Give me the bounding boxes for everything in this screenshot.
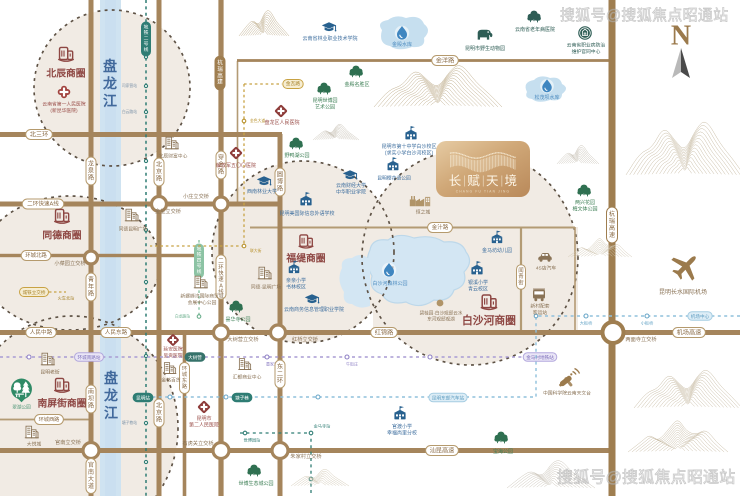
svg-text:地: 地 <box>144 23 149 30</box>
svg-text:小庄立交桥: 小庄立交桥 <box>183 192 210 200</box>
svg-text:北: 北 <box>156 402 163 410</box>
svg-text:龙: 龙 <box>103 388 118 404</box>
svg-text:金格百货: 金格百货 <box>161 377 180 384</box>
svg-text:铁: 铁 <box>197 251 202 258</box>
svg-text:速: 速 <box>609 231 615 239</box>
svg-text:瑞: 瑞 <box>609 217 615 225</box>
svg-text:幸福尚里分校: 幸福尚里分校 <box>387 430 417 437</box>
svg-text:CHANG FU TIAN JING: CHANG FU TIAN JING <box>456 190 510 194</box>
svg-text:昆明市第十中学白沙校区: 昆明市第十中学白沙校区 <box>381 143 436 150</box>
svg-text:昆明长水国际机场: 昆明长水国际机场 <box>659 288 707 296</box>
svg-text:A: A <box>219 283 223 289</box>
svg-text:新村配套: 新村配套 <box>530 303 549 310</box>
svg-text:昆明美国际信息外语学校: 昆明美国际信息外语学校 <box>279 210 334 217</box>
svg-text:福缇商圈: 福缇商圈 <box>285 252 325 265</box>
svg-text:二: 二 <box>277 371 283 378</box>
svg-text:金瓦路: 金瓦路 <box>286 80 301 87</box>
svg-text:中国科学院云南天文台: 中国科学院云南天文台 <box>543 390 591 397</box>
svg-text:青: 青 <box>518 272 524 280</box>
svg-text:建: 建 <box>217 78 223 86</box>
svg-text:机场中心: 机场中心 <box>691 313 710 320</box>
svg-text:杭: 杭 <box>609 210 615 218</box>
svg-text:亲亲小学: 亲亲小学 <box>286 277 306 284</box>
svg-text:昆明老街: 昆明老街 <box>40 369 59 376</box>
svg-text:路: 路 <box>88 290 95 298</box>
svg-text:江: 江 <box>103 93 117 109</box>
svg-text:N: N <box>671 21 691 52</box>
svg-text:杭: 杭 <box>217 59 223 67</box>
svg-text:南屏街商圈: 南屏街商圈 <box>38 397 87 410</box>
svg-text:环: 环 <box>277 378 283 385</box>
svg-text:红锦路: 红锦路 <box>375 328 394 336</box>
svg-text:昆明樱花语公园: 昆明樱花语公园 <box>377 175 411 182</box>
svg-text:高: 高 <box>217 71 223 79</box>
svg-text:昆明市: 昆明市 <box>196 415 211 422</box>
svg-text:龙: 龙 <box>88 160 94 168</box>
svg-text:火车北站: 火车北站 <box>58 295 75 302</box>
svg-text:高: 高 <box>609 224 615 232</box>
svg-text:同德昆明广场: 同德昆明广场 <box>119 226 148 233</box>
svg-text:红桥立交桥: 红桥立交桥 <box>292 335 319 343</box>
svg-text:盘龙区人民医院: 盘龙区人民医院 <box>264 119 299 126</box>
svg-text:司家营站: 司家营站 <box>122 83 137 88</box>
svg-text:第二人民医院: 第二人民医院 <box>189 422 219 429</box>
svg-text:梅文体公园: 梅文体公园 <box>572 206 597 213</box>
svg-text:(新昆华医院): (新昆华医院) <box>50 107 78 114</box>
svg-text:路: 路 <box>88 402 95 410</box>
svg-text:南: 南 <box>88 388 94 396</box>
svg-text:4S店汽车: 4S店汽车 <box>536 265 556 272</box>
svg-text:街: 街 <box>518 278 524 286</box>
svg-text:金色大道: 金色大道 <box>250 118 265 123</box>
svg-text:号: 号 <box>144 41 149 47</box>
svg-text:青云校区: 青云校区 <box>468 286 488 293</box>
svg-text:金马村地铁站: 金马村地铁站 <box>526 354 554 361</box>
svg-text:京: 京 <box>156 168 162 176</box>
svg-text:穿: 穿 <box>218 154 224 162</box>
svg-text:线: 线 <box>197 268 202 275</box>
svg-text:大板桥: 大板桥 <box>580 320 593 327</box>
svg-text:小板桥: 小板桥 <box>641 320 654 327</box>
svg-text:官: 官 <box>88 461 94 469</box>
svg-text:云南省林业职业技术学院: 云南省林业职业技术学院 <box>302 35 357 42</box>
svg-text:大树营立交桥: 大树营立交桥 <box>227 335 259 343</box>
svg-text:搜狐号@搜狐焦点昭通站: 搜狐号@搜狐焦点昭通站 <box>557 469 735 487</box>
svg-text:四: 四 <box>197 258 202 264</box>
svg-text:北: 北 <box>156 161 163 169</box>
svg-text:二: 二 <box>144 36 149 42</box>
svg-text:金星立交桥: 金星立交桥 <box>155 207 182 215</box>
svg-text:昆明世博园: 昆明世博园 <box>312 97 337 104</box>
svg-text:云南省老年病医院: 云南省老年病医院 <box>515 26 555 33</box>
svg-text:闻: 闻 <box>518 266 523 274</box>
svg-text:解放军五〇〇医院: 解放军五〇〇医院 <box>216 162 256 169</box>
svg-text:碧桂园·白沙观邸云水: 碧桂园·白沙观邸云水 <box>420 310 463 317</box>
svg-text:境: 境 <box>505 173 518 188</box>
svg-text:世博园站: 世博园站 <box>244 437 261 444</box>
svg-text:大: 大 <box>88 475 94 483</box>
svg-text:青: 青 <box>88 276 94 284</box>
svg-text:金殿名胜区: 金殿名胜区 <box>344 81 369 88</box>
svg-text:客运站: 客运站 <box>533 309 548 316</box>
svg-text:坝: 坝 <box>88 395 94 403</box>
svg-text:东: 东 <box>182 376 187 384</box>
svg-text:联大街: 联大街 <box>250 248 262 253</box>
svg-text:官渡小学: 官渡小学 <box>392 423 412 430</box>
svg-text:会展中心公园: 会展中心公园 <box>188 299 217 306</box>
svg-text:朱家村立交桥: 朱家村立交桥 <box>290 452 322 460</box>
svg-text:搜狐号@搜狐焦点昭通站: 搜狐号@搜狐焦点昭通站 <box>560 7 729 24</box>
svg-text:同德·昆明广场: 同德·昆明广场 <box>251 284 282 291</box>
svg-text:道: 道 <box>88 482 94 490</box>
svg-text:(求实小学白沙河校区): (求实小学白沙河校区) <box>385 150 434 157</box>
svg-text:汇都商业中心: 汇都商业中心 <box>233 374 262 381</box>
svg-text:城: 城 <box>182 371 188 378</box>
svg-text:博: 博 <box>277 178 283 186</box>
svg-text:金洋路: 金洋路 <box>436 56 455 64</box>
svg-text:路: 路 <box>277 185 284 193</box>
svg-text:呈贡医院: 呈贡医院 <box>163 352 182 359</box>
svg-text:路: 路 <box>156 416 163 424</box>
svg-text:人民东路: 人民东路 <box>105 328 128 336</box>
svg-text:快: 快 <box>218 269 224 277</box>
svg-text:云南商务信息管理职业学院: 云南商务信息管理职业学院 <box>284 306 344 313</box>
svg-text:东: 东 <box>277 363 283 371</box>
svg-text:小菜园立交桥: 小菜园立交桥 <box>54 259 86 267</box>
svg-text:环: 环 <box>182 365 187 372</box>
svg-text:石虎关立交桥: 石虎关立交桥 <box>182 439 214 447</box>
svg-text:江: 江 <box>104 405 118 421</box>
svg-text:京: 京 <box>156 409 162 417</box>
svg-text:环: 环 <box>218 264 224 271</box>
svg-text:汕昆高速: 汕昆高速 <box>430 446 455 454</box>
svg-text:盘: 盘 <box>103 58 117 74</box>
svg-text:路: 路 <box>182 382 188 390</box>
svg-text:宝海公园: 宝海公园 <box>493 448 513 455</box>
svg-text:大树营: 大树营 <box>188 354 202 361</box>
svg-text:野鸭湖公园: 野鸭湖公园 <box>284 152 309 159</box>
svg-text:北三环: 北三环 <box>30 130 49 138</box>
svg-text:路: 路 <box>156 175 163 183</box>
svg-text:世博生态城公园: 世博生态城公园 <box>238 480 273 487</box>
svg-text:翠湖公园: 翠湖公园 <box>12 404 31 411</box>
svg-text:西南林业大学: 西南林业大学 <box>247 188 277 195</box>
svg-text:昆明站: 昆明站 <box>136 394 150 401</box>
svg-text:盘: 盘 <box>104 370 118 386</box>
svg-text:白龙路站: 白龙路站 <box>175 314 190 319</box>
svg-text:书林校区: 书林校区 <box>286 284 306 291</box>
svg-text:龙: 龙 <box>102 76 117 92</box>
svg-text:恒之城: 恒之城 <box>416 209 431 216</box>
svg-text:金马寺站: 金马寺站 <box>314 423 331 430</box>
svg-text:中华职业学院: 中华职业学院 <box>336 189 366 196</box>
svg-text:云南省第一人民医院: 云南省第一人民医院 <box>42 101 85 108</box>
svg-text:铁: 铁 <box>144 29 149 36</box>
svg-text:东河观邸观湖: 东河观邸观湖 <box>427 316 455 323</box>
svg-text:天: 天 <box>486 174 499 188</box>
svg-text:牛街庄: 牛街庄 <box>346 361 358 367</box>
svg-text:云南财经大学: 云南财经大学 <box>336 182 366 189</box>
svg-text:瑞: 瑞 <box>217 65 223 73</box>
svg-text:南: 南 <box>88 468 94 476</box>
svg-text:两面寺立交桥: 两面寺立交桥 <box>625 335 657 343</box>
svg-text:两兴花园: 两兴花园 <box>575 199 595 206</box>
svg-text:延安医院: 延安医院 <box>163 346 182 353</box>
svg-text:二: 二 <box>218 259 224 265</box>
svg-text:路: 路 <box>88 174 95 182</box>
svg-text:机场高速: 机场高速 <box>677 328 702 336</box>
svg-text:圆: 圆 <box>277 172 283 179</box>
svg-text:白沙河森林公园: 白沙河森林公园 <box>372 280 407 287</box>
svg-text:速: 速 <box>218 276 224 283</box>
svg-text:官南立交桥: 官南立交桥 <box>55 438 82 446</box>
svg-text:金马坊幼儿园: 金马坊幼儿园 <box>482 247 512 254</box>
svg-text:北辰商圈: 北辰商圈 <box>46 67 85 80</box>
svg-text:白云路站: 白云路站 <box>122 109 137 114</box>
svg-text:环城西路: 环城西路 <box>39 415 61 423</box>
svg-text:昆明东部汽车站: 昆明东部汽车站 <box>432 394 465 401</box>
svg-text:银溪小学: 银溪小学 <box>468 279 488 286</box>
svg-text:金殿水库: 金殿水库 <box>392 41 412 48</box>
svg-text:云南省职业病防治: 云南省职业病防治 <box>567 42 606 49</box>
svg-text:艺术公园: 艺术公园 <box>315 104 335 111</box>
svg-text:环城南路站: 环城南路站 <box>78 354 101 361</box>
svg-text:塘子巷站: 塘子巷站 <box>122 420 137 425</box>
svg-text:二环快速A线: 二环快速A线 <box>27 199 59 207</box>
svg-text:塘子巷: 塘子巷 <box>235 394 249 401</box>
svg-text:号: 号 <box>197 263 202 269</box>
svg-text:线: 线 <box>144 46 149 53</box>
svg-text:年: 年 <box>88 283 94 291</box>
svg-text:环城北路: 环城北路 <box>25 251 47 259</box>
svg-text:昆明市野生动物园: 昆明市野生动物园 <box>465 45 505 52</box>
svg-text:白沙河商圈: 白沙河商圈 <box>462 313 516 327</box>
svg-text:泉: 泉 <box>88 167 94 175</box>
svg-text:昙华寺公园: 昙华寺公园 <box>225 316 250 323</box>
svg-text:维护官同中心: 维护官同中心 <box>572 48 601 55</box>
svg-text:同德商圈: 同德商圈 <box>42 229 81 242</box>
svg-text:城铁立交桥: 城铁立交桥 <box>23 289 46 296</box>
svg-text:人民中路: 人民中路 <box>30 328 53 336</box>
svg-text:松茂坝水库: 松茂坝水库 <box>534 94 559 101</box>
svg-text:新螺蛳湾国际商贸城: 新螺蛳湾国际商贸城 <box>180 293 223 300</box>
svg-text:长: 长 <box>449 174 462 188</box>
svg-text:金汁路: 金汁路 <box>432 223 449 231</box>
svg-text:大悦城: 大悦城 <box>27 441 42 448</box>
svg-text:赋: 赋 <box>467 174 480 188</box>
svg-text:北辰财富中心: 北辰财富中心 <box>159 153 188 160</box>
